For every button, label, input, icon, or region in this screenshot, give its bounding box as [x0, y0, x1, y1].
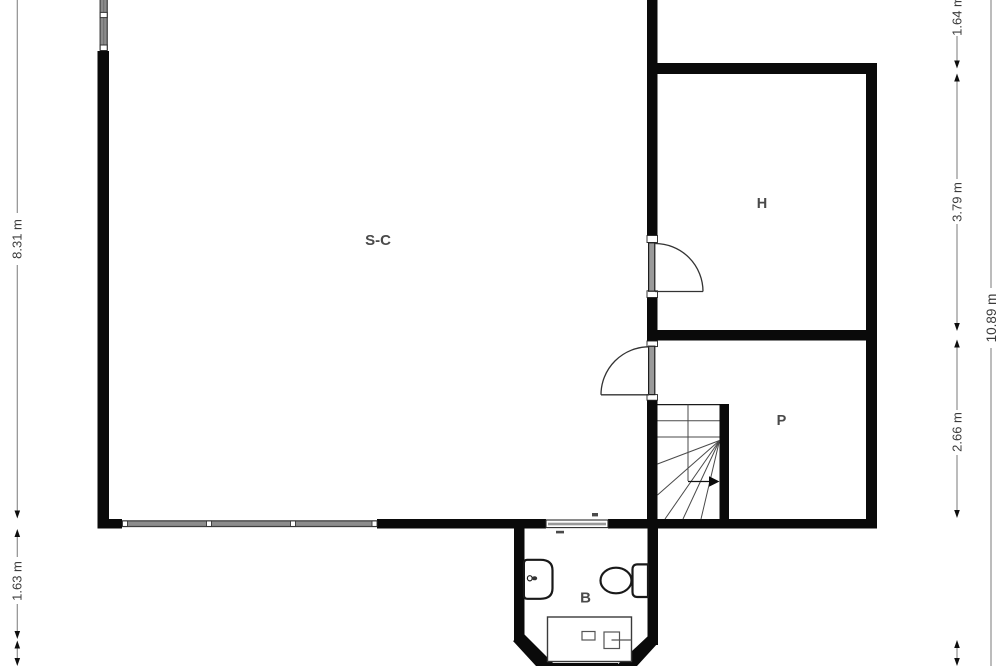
svg-text:S-C: S-C	[365, 232, 391, 249]
svg-text:H: H	[757, 196, 767, 212]
svg-text:B: B	[580, 590, 591, 607]
svg-text:1.63 m: 1.63 m	[10, 561, 25, 601]
svg-text:1.64 m: 1.64 m	[950, 0, 965, 36]
svg-text:10.89 m: 10.89 m	[984, 294, 999, 343]
svg-text:P: P	[777, 413, 787, 429]
svg-text:8.31 m: 8.31 m	[10, 219, 25, 259]
svg-text:3.79 m: 3.79 m	[950, 182, 965, 222]
svg-text:2.66 m: 2.66 m	[950, 412, 965, 452]
